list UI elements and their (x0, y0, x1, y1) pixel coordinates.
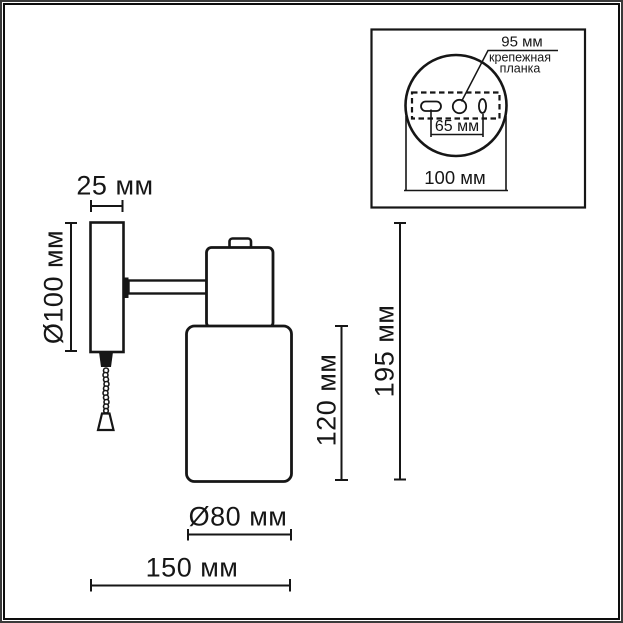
dimension-label-plate-diameter: Ø100 мм (39, 230, 70, 344)
inset-label-plate-diameter: 100 мм (424, 167, 485, 189)
dimension-label-shade-height: 120 мм (312, 354, 343, 447)
wall-plate-shape (91, 223, 124, 353)
lamp-holder-shape (207, 248, 274, 328)
dimension-label-total-height: 195 мм (370, 305, 401, 398)
switch-housing-shape (99, 352, 113, 367)
dimension-drawing-canvas: 25 мм Ø100 мм 120 мм 195 мм Ø80 мм 150 м… (0, 0, 623, 623)
dimension-label-plate-depth: 25 мм (76, 171, 153, 202)
pull-knob-shape (98, 414, 114, 431)
inset-label-bracket-length: 95 мм (501, 34, 542, 51)
lamp-shade-shape (187, 326, 292, 482)
dimension-label-total-depth: 150 мм (146, 553, 239, 584)
pull-chain (103, 368, 109, 413)
dimension-label-shade-diameter: Ø80 мм (189, 502, 288, 533)
dimension-line-plate-depth (91, 200, 123, 212)
arm-shape (129, 281, 207, 294)
line-work (2, 2, 623, 623)
inset-label-hole-spacing: 65 мм (435, 118, 479, 136)
inset-label-mounting-bracket-line2: планка (489, 63, 551, 74)
inset-label-mounting-bracket: крепежная планка (489, 53, 551, 74)
